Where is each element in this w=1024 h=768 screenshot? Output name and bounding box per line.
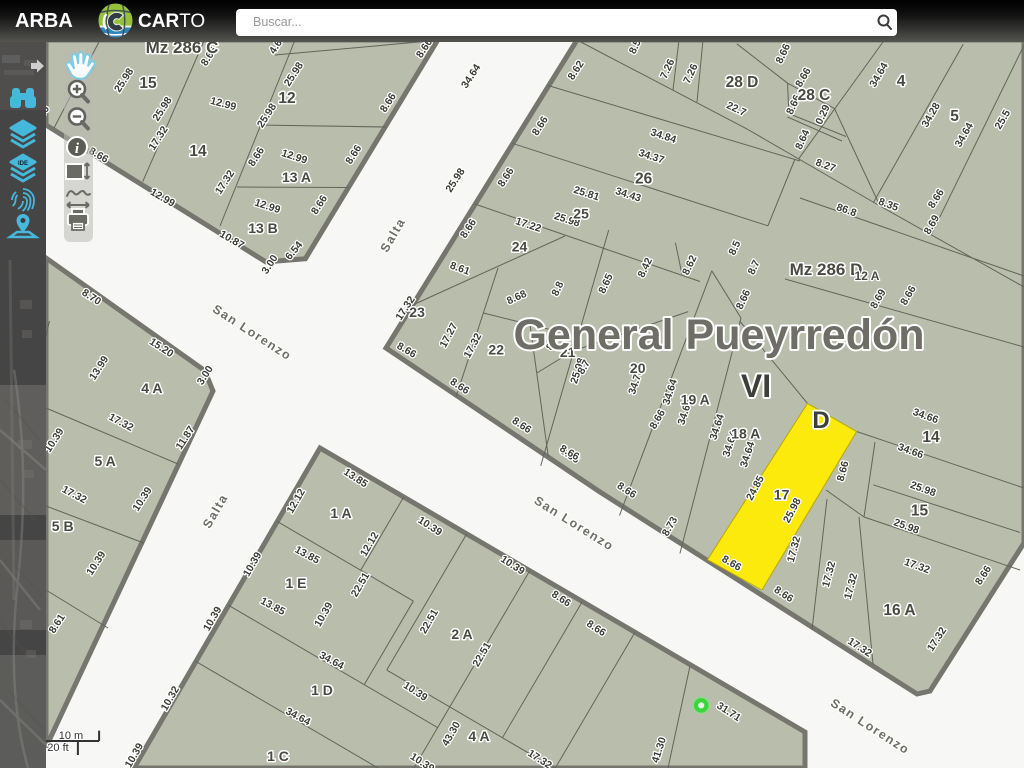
svg-text:Buscar...: Buscar... (253, 15, 302, 29)
svg-text:5: 5 (950, 108, 959, 125)
svg-text:4 A: 4 A (468, 728, 489, 744)
svg-text:D: D (812, 407, 829, 434)
svg-text:2 A: 2 A (451, 626, 472, 642)
svg-text:1 D: 1 D (311, 682, 333, 698)
svg-text:19 A: 19 A (681, 392, 710, 408)
svg-text:28 D: 28 D (726, 74, 759, 91)
svg-text:4: 4 (897, 73, 906, 90)
svg-text:VI: VI (741, 368, 771, 404)
svg-text:23: 23 (409, 304, 425, 320)
svg-text:18 A: 18 A (731, 426, 760, 442)
svg-text:5 A: 5 A (94, 453, 115, 469)
svg-text:15: 15 (139, 75, 157, 92)
svg-text:Mz 286 D: Mz 286 D (790, 260, 863, 279)
svg-text:22: 22 (488, 342, 504, 358)
svg-text:13 B: 13 B (248, 220, 278, 236)
svg-text:20 ft: 20 ft (47, 742, 68, 754)
svg-text:General Pueyrredón: General Pueyrredón (513, 311, 924, 359)
svg-text:13 A: 13 A (282, 169, 311, 185)
svg-text:1 E: 1 E (285, 575, 306, 591)
svg-text:14: 14 (922, 429, 940, 446)
svg-text:20: 20 (630, 360, 646, 376)
svg-text:16 A: 16 A (883, 602, 915, 619)
svg-text:1 C: 1 C (267, 748, 289, 764)
svg-text:28 C: 28 C (798, 87, 831, 104)
svg-text:1 A: 1 A (330, 505, 351, 521)
svg-text:25: 25 (573, 205, 589, 221)
svg-text:12 A: 12 A (855, 269, 880, 283)
svg-text:4 A: 4 A (141, 380, 162, 396)
svg-text:24: 24 (512, 239, 528, 255)
svg-text:5 B: 5 B (52, 518, 74, 534)
svg-text:12: 12 (278, 90, 295, 107)
svg-text:CARTO: CARTO (138, 11, 205, 32)
svg-text:15: 15 (911, 503, 929, 520)
svg-text:ARBA: ARBA (15, 10, 73, 32)
svg-text:26: 26 (635, 170, 653, 187)
svg-text:14: 14 (189, 143, 207, 160)
svg-text:17: 17 (774, 487, 790, 503)
svg-text:IDE: IDE (18, 161, 28, 167)
